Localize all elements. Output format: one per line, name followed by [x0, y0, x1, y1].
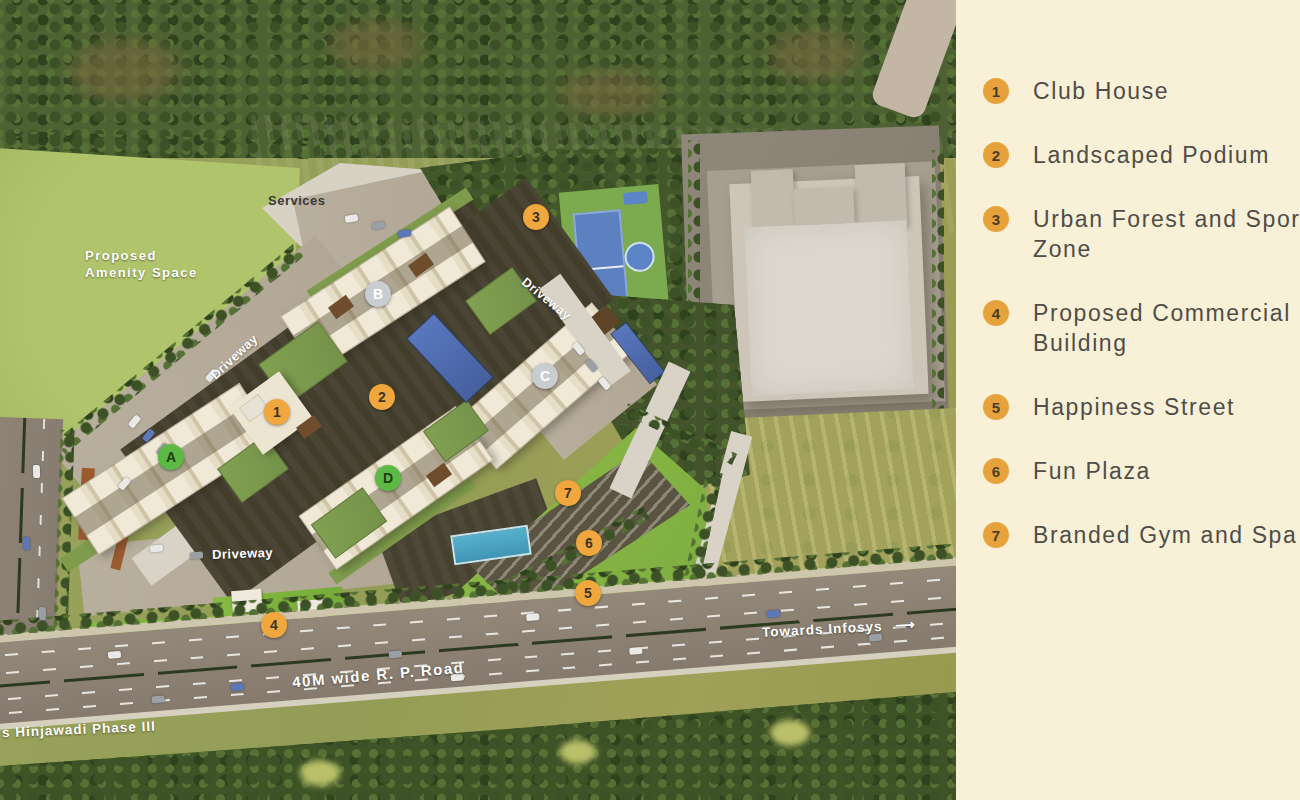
- car: [389, 650, 403, 658]
- legend-label: Branded Gym and Spa: [1033, 520, 1300, 550]
- site-plan-screenshot: Services Proposed Amenity Space Driveway…: [0, 0, 1300, 800]
- tower-marker-c: C: [532, 363, 558, 389]
- legend-item: 4 Proposed Commercial Building: [983, 298, 1300, 358]
- legend-item: 2 Landscaped Podium: [983, 140, 1300, 170]
- tower-marker-b: B: [365, 281, 391, 307]
- legend-label: Happiness Street: [1033, 392, 1300, 422]
- car: [526, 613, 540, 621]
- commercial-block: [751, 169, 795, 229]
- yellow-bush: [560, 740, 596, 764]
- site-marker-7: 7: [555, 480, 581, 506]
- legend-marker-4: 4: [983, 300, 1009, 326]
- car: [767, 610, 781, 618]
- amenity-line1: Proposed: [85, 247, 198, 264]
- legend-label: Urban Forest and Sports Zone: [1033, 204, 1300, 264]
- car: [33, 465, 40, 478]
- car: [629, 647, 643, 655]
- legend-label: Proposed Commercial Building: [1033, 298, 1300, 358]
- car: [108, 651, 122, 659]
- forest-clearing: [560, 70, 660, 116]
- car: [869, 634, 883, 642]
- commercial-block: [793, 187, 855, 226]
- court-patch: [623, 191, 648, 205]
- car: [151, 695, 165, 703]
- site-marker-3: 3: [523, 204, 549, 230]
- driveway-label: Driveway: [212, 545, 274, 562]
- commercial-block: [855, 163, 908, 227]
- legend-item: 3 Urban Forest and Sports Zone: [983, 204, 1300, 264]
- tower-marker-d: D: [375, 465, 401, 491]
- legend-marker-5: 5: [983, 394, 1009, 420]
- site-marker-6: 6: [576, 530, 602, 556]
- legend-label: Club House: [1033, 76, 1300, 106]
- yellow-bush: [770, 720, 810, 746]
- tower-marker-a: A: [158, 444, 184, 470]
- site-marker-2: 2: [369, 384, 395, 410]
- legend-marker-1: 1: [983, 78, 1009, 104]
- legend-item: 1 Club House: [983, 76, 1300, 106]
- legend-item: 7 Branded Gym and Spa: [983, 520, 1300, 550]
- forest-clearing: [330, 20, 420, 70]
- site-marker-1: 1: [264, 399, 290, 425]
- site-marker-4: 4: [261, 612, 287, 638]
- legend-marker-7: 7: [983, 522, 1009, 548]
- legend-marker-6: 6: [983, 458, 1009, 484]
- splash-pad: [623, 241, 656, 274]
- right-arrow-icon: ⟶: [895, 617, 916, 633]
- commercial-roof: [744, 221, 913, 396]
- car: [23, 537, 30, 550]
- site-marker-5: 5: [575, 580, 601, 606]
- legend-item: 6 Fun Plaza: [983, 456, 1300, 486]
- services-label: Services: [268, 193, 326, 208]
- car: [190, 551, 204, 559]
- tree-row: [932, 150, 944, 410]
- amenity-space-label: Proposed Amenity Space: [85, 247, 198, 281]
- car: [231, 683, 245, 691]
- forest-clearing: [70, 40, 180, 100]
- legend-marker-3: 3: [983, 206, 1009, 232]
- legend-marker-2: 2: [983, 142, 1009, 168]
- legend-label: Fun Plaza: [1033, 456, 1300, 486]
- legend-item: 5 Happiness Street: [983, 392, 1300, 422]
- master-plan-map: Services Proposed Amenity Space Driveway…: [0, 0, 956, 800]
- legend-label: Landscaped Podium: [1033, 140, 1300, 170]
- forest-clearing: [770, 30, 860, 80]
- yellow-bush: [300, 760, 340, 786]
- amenity-line2: Amenity Space: [85, 264, 198, 281]
- legend-panel: 1 Club House 2 Landscaped Podium 3 Urban…: [956, 0, 1300, 800]
- car: [150, 544, 164, 552]
